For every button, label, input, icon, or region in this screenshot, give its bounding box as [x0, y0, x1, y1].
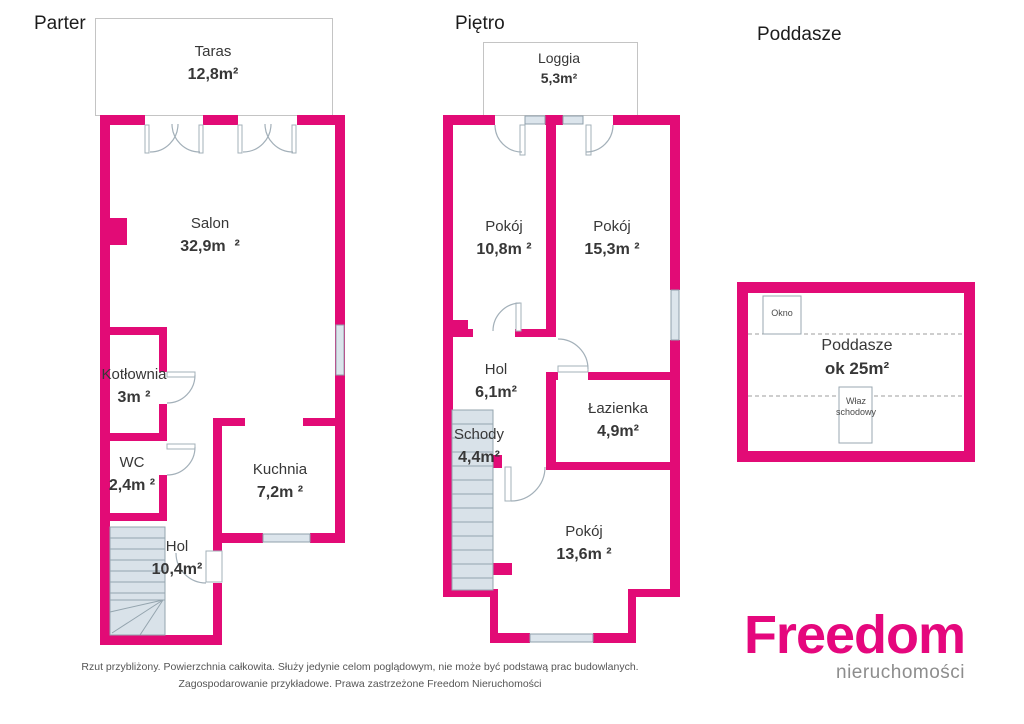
window: [563, 116, 583, 124]
attic-hatch-label: Właz schodowy: [833, 396, 879, 419]
room-label-pokoj-1: Pokój 10,8m ²: [476, 216, 531, 261]
room-label-hol-pietro: Hol 6,1m²: [475, 359, 517, 404]
room-label-pokoj-3: Pokój 13,6m ²: [556, 521, 611, 566]
floor-title-parter: Parter: [34, 13, 86, 35]
floor-title-poddasze: Poddasze: [757, 24, 842, 46]
room-label-loggia: Loggia 5,3m²: [538, 48, 580, 89]
room-label-kotlownia: Kotłownia 3m ²: [101, 364, 166, 409]
room-label-poddasze: Poddasze ok 25m²: [821, 334, 892, 382]
room-label-pokoj-2: Pokój 15,3m ²: [584, 216, 639, 261]
floor-title-pietro: Piętro: [455, 13, 505, 35]
room-label-wc: WC 2,4m ²: [109, 452, 155, 497]
floorplan-page: Parter Piętro Poddasze Taras 12,8m² Salo…: [0, 0, 1024, 724]
room-label-kuchnia: Kuchnia 7,2m ²: [253, 459, 307, 504]
window: [263, 534, 310, 542]
room-label-salon: Salon 32,9m ²: [180, 213, 240, 258]
parter-windows: [263, 325, 344, 542]
window: [525, 116, 545, 124]
window: [336, 325, 344, 375]
room-label-taras: Taras 12,8m²: [188, 41, 239, 86]
window: [530, 634, 593, 642]
room-label-hol-parter: Hol 10,4m²: [152, 536, 203, 581]
room-label-schody: Schody 4,4m²: [454, 424, 504, 469]
attic-window-label: Okno: [771, 308, 793, 319]
disclaimer-line-2: Zagospodarowanie przykładowe. Prawa zast…: [35, 676, 685, 693]
freedom-logo-wordmark: Freedom: [705, 604, 965, 666]
room-label-lazienka: Łazienka 4,9m²: [588, 398, 648, 443]
freedom-logo: Freedom nieruchomości: [705, 604, 965, 684]
disclaimer-line-1: Rzut przybliżony. Powierzchnia całkowita…: [35, 659, 685, 676]
disclaimer: Rzut przybliżony. Powierzchnia całkowita…: [35, 659, 685, 693]
window: [671, 290, 679, 340]
